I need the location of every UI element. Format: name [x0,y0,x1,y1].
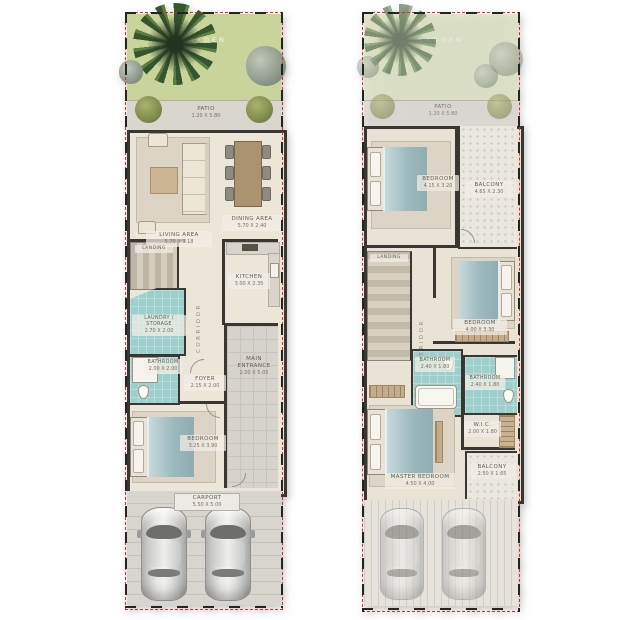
boundary-tick-marks [362,12,520,14]
boundary-tick-marks [125,12,127,610]
bed-pillow [370,414,381,440]
car-mirror [186,530,191,538]
shrub-icon [135,96,162,123]
bed-pillow [370,444,381,470]
dining-chair [225,187,234,201]
car-mirror [201,530,206,538]
car-roof [386,540,418,567]
master-bedroom-label: MASTER BEDROOM 4.50 X 4.00 [385,473,455,489]
boundary-tick-marks [362,608,520,610]
shrub-icon [119,60,143,84]
cooktop [242,244,258,251]
bedroom-2-label: BEDROOM 4.15 X 3.20 [417,175,459,191]
car-mirror [137,530,142,538]
boundary-tick-marks [518,12,520,612]
shrub-icon [357,56,379,78]
car-rear-window [387,569,418,577]
car-roof [211,540,244,567]
corridor-label: CORRIDOR [196,249,202,353]
dining-chair [262,145,271,159]
car-roof [448,540,480,567]
armchair [148,133,168,147]
wic-label: W.I.C. 2.00 X 1.80 [464,421,501,437]
door-swing-arc [190,359,204,373]
sofa [182,143,209,215]
car-windshield [146,525,182,539]
landing-label: LANDING [370,254,408,262]
boundary-tick-marks [125,606,283,608]
bed-duvet [459,261,500,321]
staircase: LANDING [130,242,179,290]
dining-chair [225,145,234,159]
wall-segment [433,248,436,298]
foyer-label: FOYER 2.15 X 2.00 [184,375,226,391]
bedroom-label: BEDROOM 3.25 X 3.90 [180,435,226,451]
car-windshield [210,525,246,539]
car-rear-window [449,569,480,577]
bathroom-2-label: BATHROOM 2.40 X 1.80 [415,357,455,372]
ground-floor-building: LIVING AREA 5.70 X 3.18 DINING AREA 5.70… [127,130,287,497]
carport-area: CARPORT 5.50 X 5.00 [127,491,281,605]
shrub-icon [370,94,395,119]
bathroom-3-label: BATHROOM 2.40 X 1.80 [465,375,505,390]
car-windshield [385,525,419,539]
bedroom-3-label: BEDROOM 4.00 X 3.30 [453,319,507,335]
car-rear-window [148,569,180,577]
boundary-tick-marks [281,12,283,610]
wall-segment [222,239,225,325]
first-floor-plan: GARDEN PATIO 1.20 X 5.80 BEDROOM [362,12,520,612]
dining-table [234,141,262,207]
bed-bench [435,421,443,463]
car-top-view [141,507,187,601]
car-roof [147,540,180,567]
bathroom-label: BATHROOM 2.00 X 2.00 [144,359,182,374]
bathtub [415,385,457,409]
bed-pillow [501,265,512,289]
bed [367,409,433,475]
balcony-rear-label: BALCONY 2.50 X 1.65 [469,463,515,479]
landing-label: LANDING [135,245,173,253]
shrub-icon [246,46,286,86]
car-windshield [447,525,481,539]
boundary-tick-marks [362,12,364,612]
coffee-table [150,167,178,194]
car-mirror [250,530,255,538]
shrub-icon [246,96,273,123]
dresser [369,385,405,398]
shrub-icon [487,94,512,119]
palm-tree-icon [133,3,217,85]
main-entrance-label: MAIN ENTRANCE 2.00 X 5.05 [230,355,278,378]
ground-floor-plan: GARDEN PATIO 1.20 X 5.80 LIVING AREA 5.7… [125,12,283,610]
corridor-label: CORRIDOR [419,259,425,369]
bathtub-interior [418,388,454,406]
balcony-front-label: BALCONY 4.65 X 2.30 [465,181,513,197]
bed-pillow [370,181,381,207]
staircase: LANDING [367,251,412,361]
patio-label: PATIO 1.20 X 5.80 [177,105,235,121]
wardrobe [499,415,515,448]
kitchen-sink [270,263,279,278]
shrub-icon [474,64,498,88]
car-top-view [380,508,424,600]
floorplan-canvas: GARDEN PATIO 1.20 X 5.80 LIVING AREA 5.7… [0,0,620,620]
dining-chair [262,187,271,201]
car-top-view [442,508,486,600]
first-floor-building: BEDROOM 4.15 X 3.20 BALCONY 4.65 X 2.30 … [364,126,524,504]
bed-pillow [501,293,512,317]
kitchen-label: KITCHEN 3.00 X 2.35 [228,273,270,289]
wall-segment [367,245,458,248]
bed-pillow [133,421,144,445]
boundary-tick-marks [125,12,283,14]
carport-roof-area [364,500,518,606]
dining-chair [262,166,271,180]
bed-pillow [370,152,381,178]
dining-chair [225,166,234,180]
bed-pillow [133,449,144,473]
carport-label: CARPORT 5.50 X 5.00 [174,493,240,511]
patio-label: PATIO 1.20 X 5.80 [414,103,472,119]
car-top-view [205,507,251,601]
bed-duvet [385,409,433,475]
main-entrance-area [227,326,278,488]
dining-area-label: DINING AREA 5.70 X 2.40 [222,215,282,231]
car-rear-window [212,569,244,577]
bed [459,261,515,321]
laundry-storage-label: LAUNDRY / STORAGE 2.70 X 2.00 [132,315,186,336]
